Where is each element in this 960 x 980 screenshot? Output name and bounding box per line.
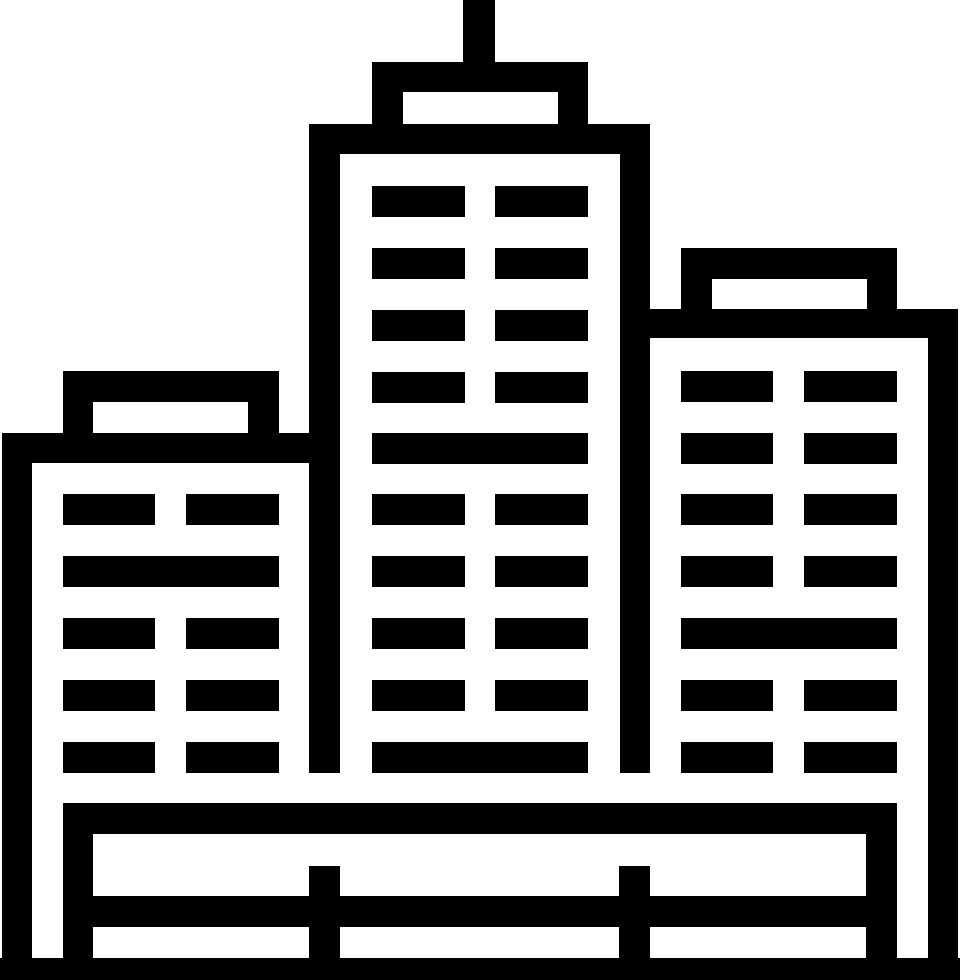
ground-band xyxy=(0,958,960,980)
right-building-window-r5-full xyxy=(681,618,897,649)
right-building-right-wall xyxy=(928,309,958,958)
left-building-window-r4-left xyxy=(63,680,155,711)
left-building-window-r2-full xyxy=(63,556,279,587)
center-tower-window-r1-left xyxy=(372,186,465,217)
right-building-window-r4-left xyxy=(681,556,773,587)
fence-post-left xyxy=(63,803,93,958)
right-building-penthouse-window xyxy=(712,279,867,309)
center-tower-window-r7-right xyxy=(495,556,588,587)
right-building-window-r7-right xyxy=(804,742,897,773)
left-building-window-r4-right xyxy=(186,680,279,711)
center-tower-window-r8-right xyxy=(495,618,588,649)
center-tower-window-r4-left xyxy=(372,372,465,403)
right-building-window-r3-left xyxy=(681,494,773,525)
center-tower-window-r4-right xyxy=(495,372,588,403)
icon-canvas xyxy=(0,0,960,980)
plaza-deck-band xyxy=(63,803,897,834)
antenna xyxy=(463,0,495,70)
left-building-roof-band xyxy=(2,433,340,463)
left-building-window-r5-right xyxy=(186,742,279,773)
right-building-window-r6-left xyxy=(681,680,773,711)
right-building-window-r7-left xyxy=(681,742,773,773)
left-building-window-r5-left xyxy=(63,742,155,773)
right-building-window-r6-right xyxy=(804,680,897,711)
center-tower-window-r1-right xyxy=(495,186,588,217)
center-tower-window-r6-right xyxy=(495,494,588,525)
right-building-roof-band xyxy=(620,309,958,338)
left-building-penthouse-window xyxy=(93,402,248,433)
center-tower-window-r9-left xyxy=(372,680,465,711)
center-tower-window-r9-right xyxy=(495,680,588,711)
center-tower-window-r7-left xyxy=(372,556,465,587)
center-tower-window-r3-right xyxy=(495,310,588,341)
fence-post-right xyxy=(866,803,897,958)
center-tower-roof-cap-window xyxy=(403,92,558,124)
left-building-left-wall xyxy=(2,433,32,958)
center-tower-window-r3-left xyxy=(372,310,465,341)
right-building-window-r2-left xyxy=(681,433,773,464)
right-building-window-r2-right xyxy=(804,433,897,464)
fence-rail xyxy=(63,896,897,927)
center-tower-window-r6-left xyxy=(372,494,465,525)
right-building-window-r4-right xyxy=(804,556,897,587)
right-building-window-r1-right xyxy=(804,371,897,402)
center-tower-window-r2-right xyxy=(495,248,588,279)
center-tower-window-r2-left xyxy=(372,248,465,279)
center-tower-window-r8-left xyxy=(372,618,465,649)
center-tower-window-r10-full xyxy=(372,742,588,773)
left-building-window-r1-left xyxy=(63,494,155,525)
left-building-window-r3-right xyxy=(186,618,279,649)
right-building-window-r1-left xyxy=(681,371,773,402)
center-tower-window-r5-full xyxy=(372,433,588,464)
right-building-window-r3-right xyxy=(804,494,897,525)
city-buildings-icon xyxy=(0,0,960,980)
left-building-window-r1-right xyxy=(186,494,279,525)
left-building-window-r3-left xyxy=(63,618,155,649)
